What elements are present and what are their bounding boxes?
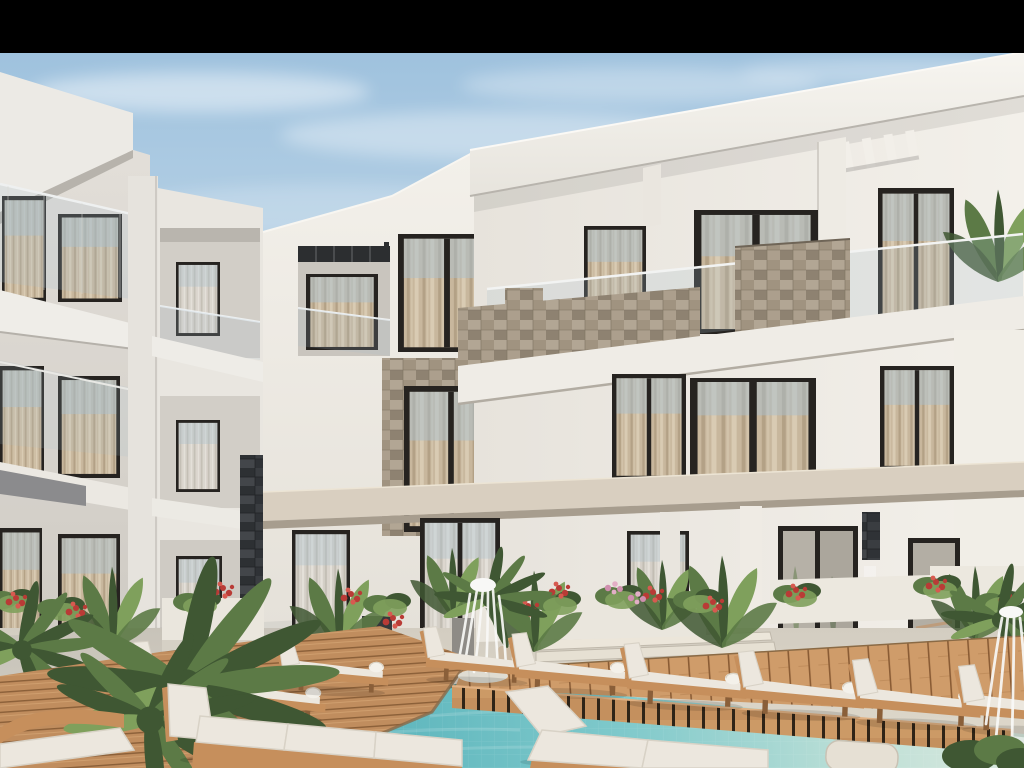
left-apartment-block [0,72,150,658]
lounger-backrest-partial [825,740,899,768]
scene-render: Architectural rendering of a modern whit… [0,0,1024,768]
window [176,420,220,492]
window [612,374,686,480]
stone-planter [735,239,850,332]
letterbox-bar [0,0,1024,53]
column [643,164,661,228]
pilaster [128,176,158,656]
window [880,366,954,470]
slate-accent [862,512,880,560]
window [690,378,816,478]
screenshot-root: Architectural rendering of a modern whit… [0,0,1024,768]
bright-pilaster [954,330,1024,592]
